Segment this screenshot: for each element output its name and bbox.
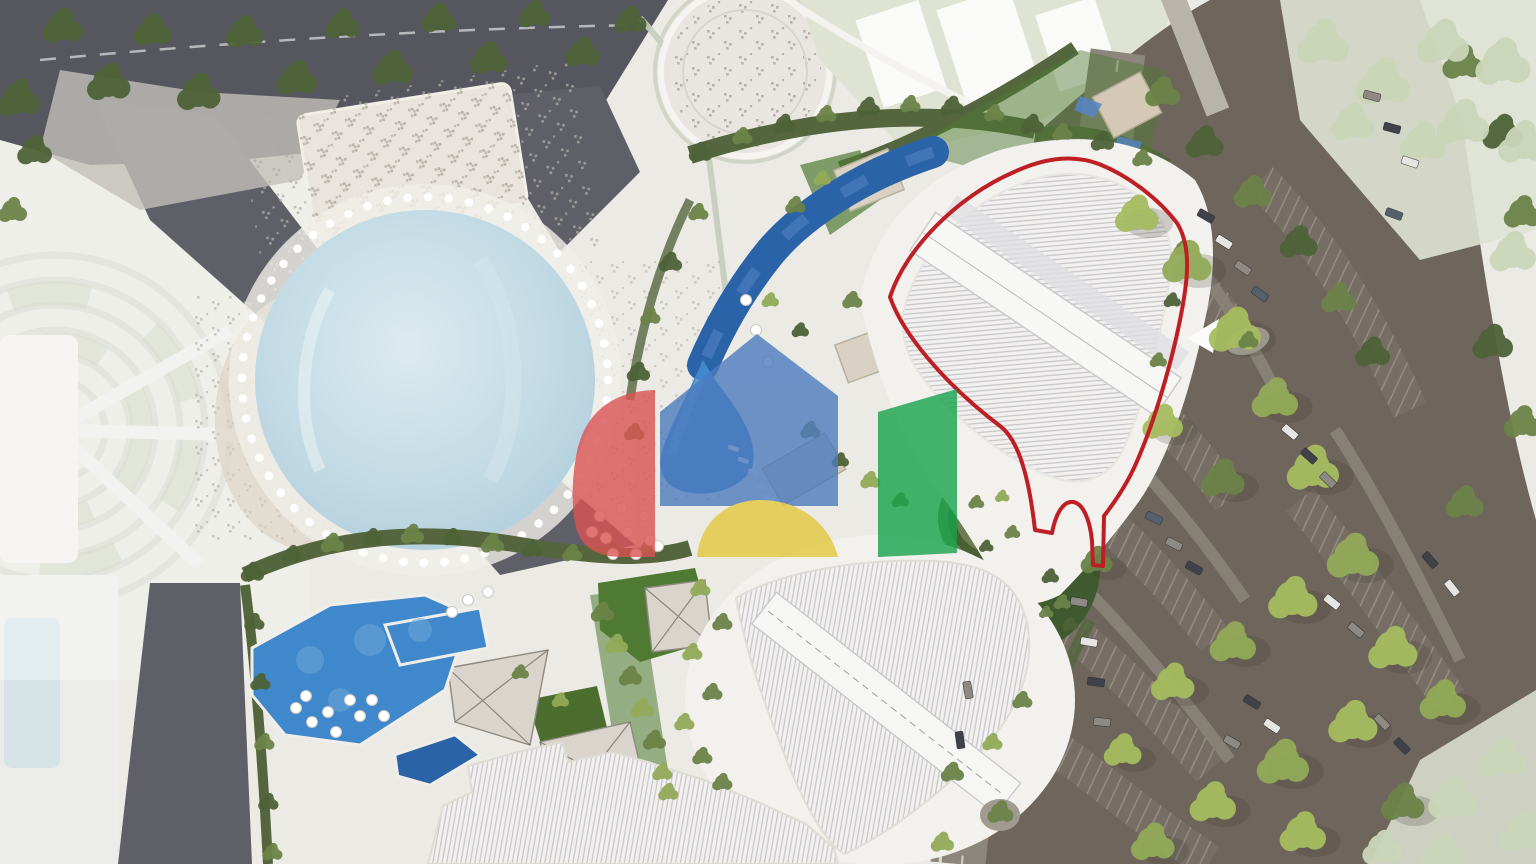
umbrella xyxy=(379,711,390,722)
umbrella xyxy=(751,325,762,336)
umbrella xyxy=(345,695,356,706)
car xyxy=(1093,717,1111,727)
umbrella xyxy=(291,703,302,714)
umbrella xyxy=(323,707,334,718)
umbrella xyxy=(331,727,342,738)
site-plan-canvas xyxy=(0,0,1536,864)
umbrella xyxy=(301,691,312,702)
umbrella xyxy=(741,295,752,306)
umbrella xyxy=(447,607,458,618)
umbrella xyxy=(355,711,366,722)
site-plan-render xyxy=(0,0,1536,864)
umbrella xyxy=(463,595,474,606)
umbrella xyxy=(367,695,378,706)
umbrella xyxy=(307,717,318,728)
watermark-green-panel xyxy=(878,389,957,557)
umbrella xyxy=(483,587,494,598)
